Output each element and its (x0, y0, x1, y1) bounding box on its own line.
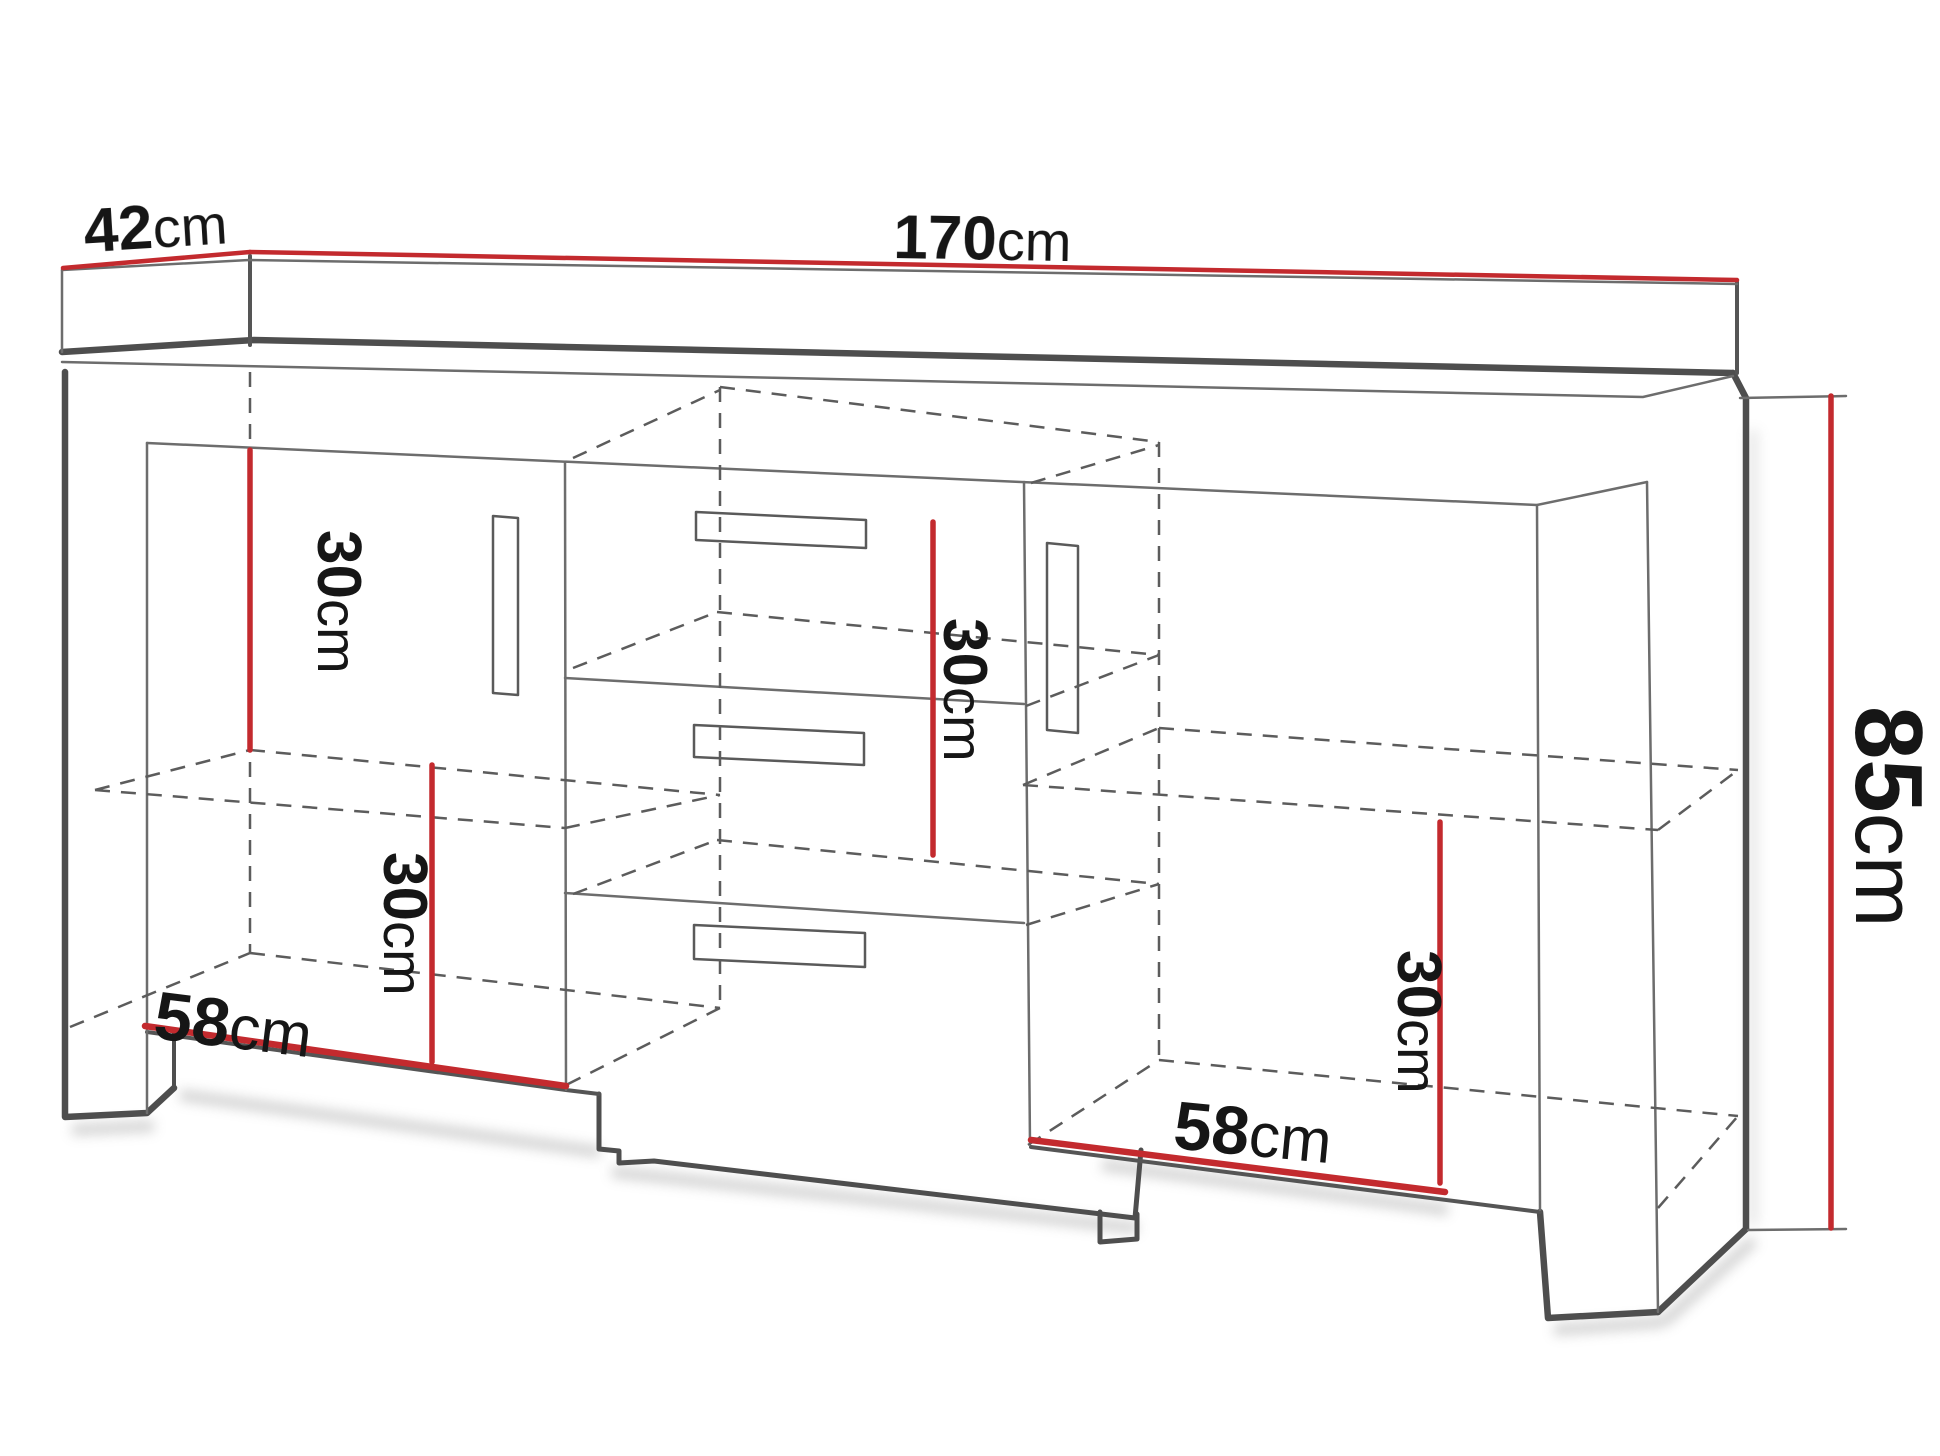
label-height: 85cm (1835, 706, 1940, 927)
label-depth: 42cm (82, 188, 230, 266)
right-shelf (1023, 728, 1738, 830)
label-right-compartment-width: 58cm (1171, 1087, 1336, 1178)
divider-left-edge (565, 462, 566, 1090)
left-shelf (95, 750, 720, 828)
right-side-outer-edge (1733, 373, 1746, 1229)
label-left-lower-clearance: 30cm (370, 852, 439, 996)
diagram-page: 42cm 170cm 85cm 30cm 30cm 30cm 30cm 58cm… (0, 0, 1940, 1456)
divider-right-edge (1024, 482, 1030, 1144)
top-depth-diagonal-right (1031, 445, 1159, 483)
right-side-bottom-edge (1658, 1229, 1746, 1312)
right-leg (1540, 1212, 1658, 1318)
top-depth-diagonal-left (573, 390, 720, 458)
top-rail-line (147, 443, 1647, 505)
dimension-labels: 42cm 170cm 85cm 30cm 30cm 30cm 30cm 58cm… (82, 188, 1940, 1178)
cabinet-thin-lines (62, 260, 1846, 1312)
label-left-upper-clearance: 30cm (304, 530, 373, 674)
right-door-handle (1047, 543, 1078, 733)
hidden-interior-lines (70, 372, 1738, 1208)
right-stile-inner-edge (1537, 505, 1540, 1210)
drawer-gap-line-2 (565, 893, 1024, 923)
drawer-handle-1 (696, 512, 866, 548)
top-back-edge (720, 387, 1159, 442)
furniture-dimension-diagram: 42cm 170cm 85cm 30cm 30cm 30cm 30cm 58cm… (0, 0, 1940, 1456)
cabinet-outline (62, 340, 1746, 1318)
label-right-lower-clearance: 30cm (1384, 950, 1453, 1094)
label-middle-clearance: 30cm (930, 618, 999, 762)
left-door-handle (493, 516, 518, 695)
front-side-boundary-edge (1647, 482, 1658, 1312)
label-width: 170cm (893, 203, 1072, 275)
